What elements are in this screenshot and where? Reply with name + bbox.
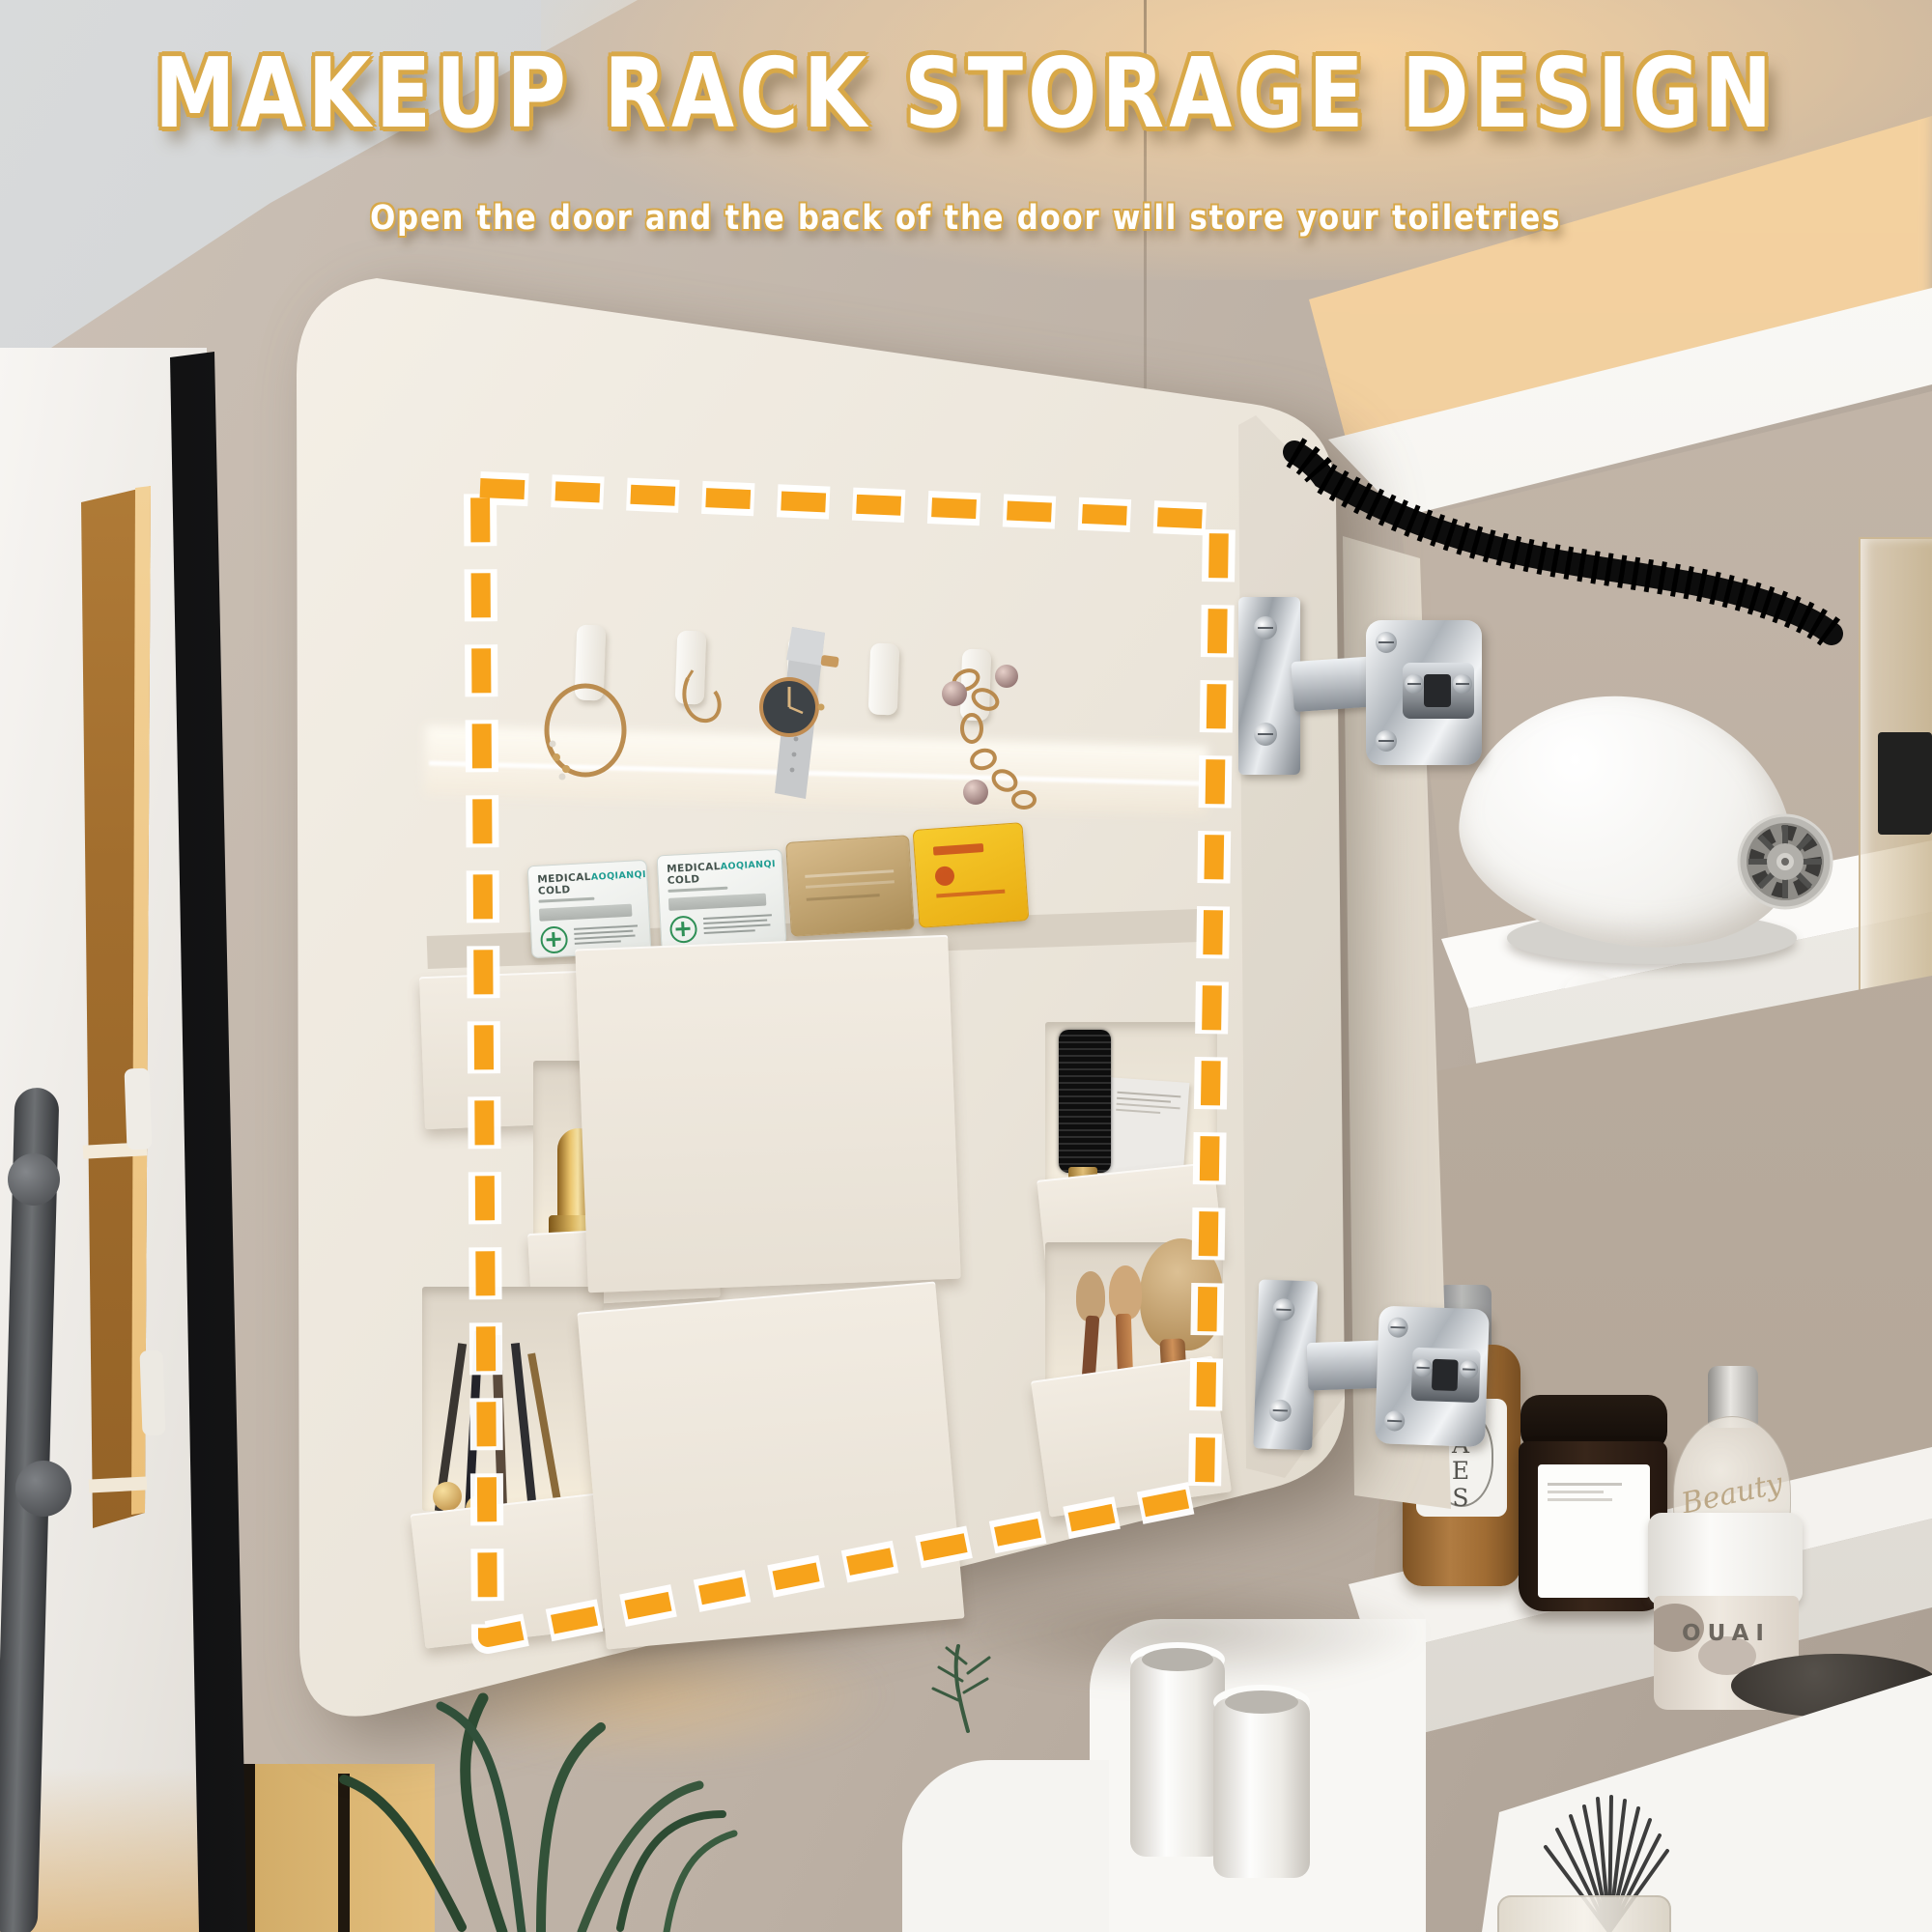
makeup-brush-small-2-tip (1109, 1265, 1142, 1320)
mask-packet-3 (785, 835, 915, 937)
pocket-pencil-front (411, 1492, 614, 1648)
round-hair-brush (1059, 1030, 1111, 1173)
gold-bangle-icon (537, 674, 634, 788)
cosmetic-card (1104, 1077, 1190, 1179)
hinge-door-plate (1238, 597, 1300, 775)
gold-earring-icon (676, 668, 726, 728)
pearl-chain-bracelet-icon (925, 655, 1051, 824)
hinge-bottom (1253, 1274, 1491, 1462)
makeup-brush-small-1-tip (1076, 1271, 1105, 1321)
mask-packet-4 (913, 822, 1030, 928)
mask-packet-1: MEDICAL COLDAOQIANQI (527, 860, 652, 958)
packet-name: MEDICAL COLD (537, 871, 592, 897)
hinge-bracket (1366, 620, 1482, 765)
green-cross-seal-icon (540, 925, 568, 953)
page-title: MAKEUP RACK STORAGE DESIGN (0, 37, 1932, 150)
green-cross-seal-icon (669, 915, 697, 943)
makeup-brush-large-tip (1140, 1238, 1223, 1350)
hook-4 (868, 642, 900, 715)
pocket-large-1 (575, 935, 960, 1293)
hinge-top (1238, 591, 1482, 781)
gold-ball-1 (433, 1482, 462, 1511)
pocket-brushes-front (1031, 1355, 1232, 1517)
mask-packet-2: MEDICAL COLDAOQIANQI (656, 849, 786, 952)
packet-name: MEDICAL COLD (667, 861, 722, 887)
hinge-bracket (1375, 1306, 1490, 1447)
wrist-watch-icon (736, 623, 862, 807)
packet-brand: AOQIANQI (591, 869, 647, 883)
door-panel (0, 0, 1932, 1932)
bathroom-product-scene: BAES Beauty OUAI (0, 0, 1932, 1932)
packet-brand: AOQIANQI (721, 859, 777, 872)
page-subtitle: Open the door and the back of the door w… (0, 199, 1932, 238)
pocket-large-2 (577, 1281, 964, 1649)
